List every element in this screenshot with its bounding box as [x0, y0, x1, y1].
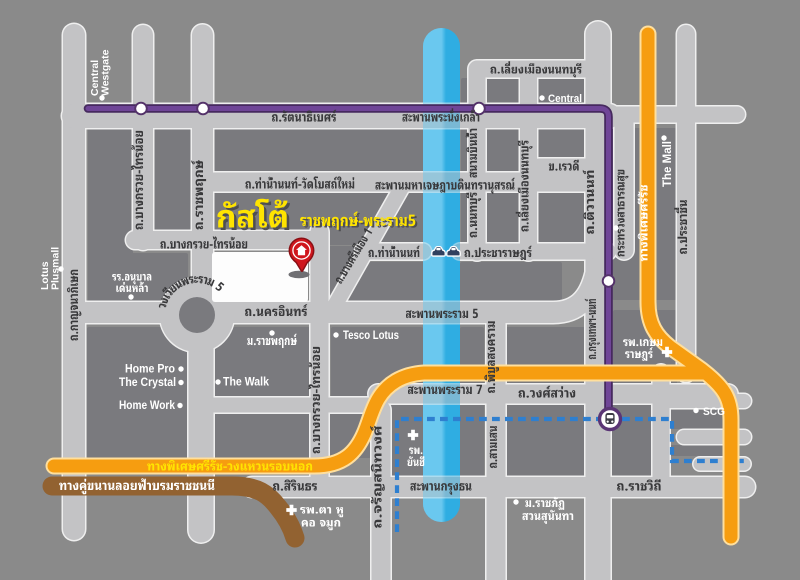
svg-text:The Crystal: The Crystal: [119, 377, 176, 389]
svg-text:The Walk: The Walk: [223, 377, 270, 389]
svg-text:Home Pro: Home Pro: [125, 364, 175, 376]
svg-text:Westgate: Westgate: [100, 49, 112, 96]
svg-text:SCG: SCG: [703, 406, 725, 418]
svg-text:Tesco Lotus: Tesco Lotus: [343, 330, 399, 342]
svg-text:Plusmall: Plusmall: [50, 247, 62, 290]
svg-text:Central: Central: [548, 93, 582, 105]
svg-text:Home Work: Home Work: [119, 400, 176, 412]
svg-text:The Mall: The Mall: [662, 141, 674, 187]
